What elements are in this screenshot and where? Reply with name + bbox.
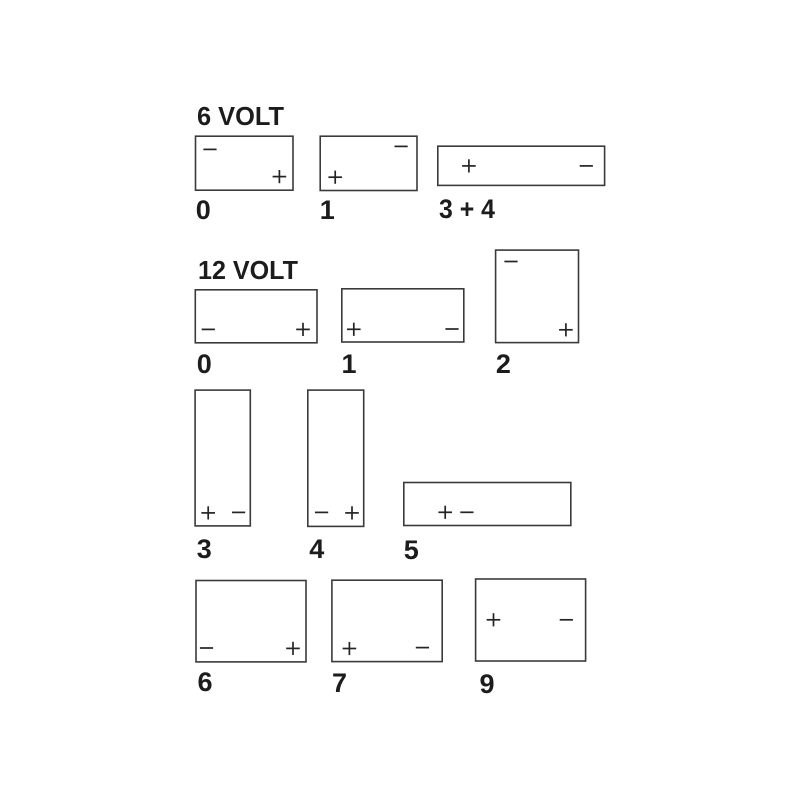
- svg-text:7: 7: [332, 668, 347, 698]
- svg-text:9: 9: [480, 669, 495, 699]
- svg-text:6 VOLT: 6 VOLT: [197, 101, 284, 131]
- svg-text:3: 3: [197, 534, 212, 564]
- svg-text:0: 0: [197, 349, 212, 379]
- svg-text:6: 6: [198, 667, 213, 697]
- svg-text:12 VOLT: 12 VOLT: [198, 255, 298, 285]
- svg-text:2: 2: [496, 349, 511, 379]
- svg-text:5: 5: [404, 535, 419, 565]
- svg-text:3 + 4: 3 + 4: [439, 194, 495, 224]
- svg-text:4: 4: [309, 534, 324, 564]
- svg-text:1: 1: [342, 349, 357, 379]
- svg-text:0: 0: [196, 195, 211, 225]
- svg-text:1: 1: [320, 195, 335, 225]
